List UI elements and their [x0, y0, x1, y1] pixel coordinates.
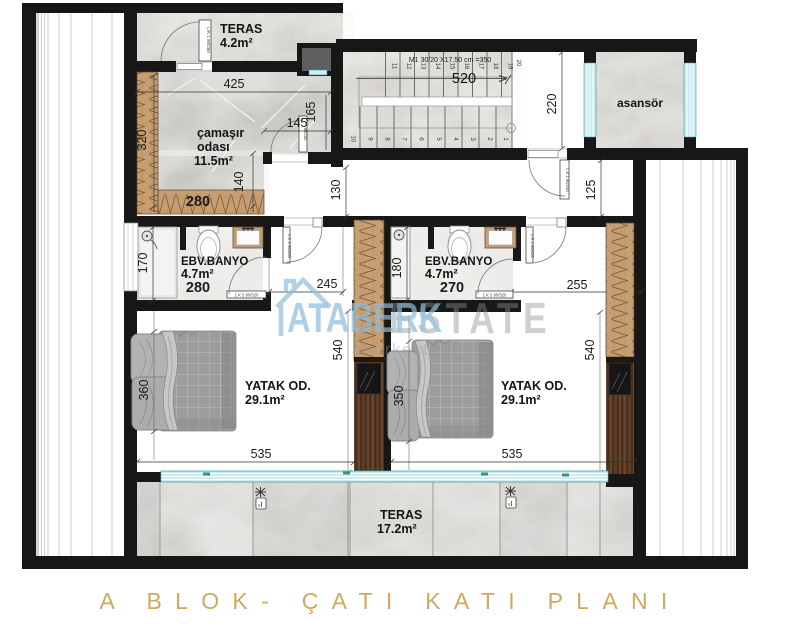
svg-text:540: 540 — [331, 340, 345, 361]
svg-text:13: 13 — [420, 63, 426, 70]
svg-text:asansör: asansör — [617, 96, 663, 110]
svg-text:535: 535 — [251, 447, 272, 461]
svg-text:520: 520 — [452, 71, 476, 87]
svg-text:15: 15 — [449, 63, 455, 70]
svg-text:140: 140 — [232, 172, 246, 193]
svg-text:4.2m²: 4.2m² — [220, 36, 253, 50]
svg-text:540: 540 — [583, 340, 597, 361]
svg-text:130: 130 — [329, 180, 343, 201]
svg-text:180: 180 — [390, 258, 404, 279]
svg-text:14: 14 — [434, 63, 440, 70]
svg-text:125: 125 — [584, 180, 598, 201]
svg-text:10: 10 — [350, 136, 356, 143]
svg-text:29.1m²: 29.1m² — [245, 393, 285, 407]
svg-text:170: 170 — [136, 253, 150, 274]
svg-text:165: 165 — [304, 102, 318, 123]
svg-text:11: 11 — [391, 63, 397, 70]
svg-text:535: 535 — [502, 447, 523, 461]
svg-text:4.7m²: 4.7m² — [181, 267, 214, 281]
svg-text:280: 280 — [186, 194, 210, 210]
svg-text:11.5m²: 11.5m² — [194, 154, 233, 168]
svg-text:TERAS: TERAS — [380, 508, 422, 522]
svg-text:17: 17 — [478, 63, 484, 70]
svg-text:odası: odası — [197, 140, 230, 154]
svg-text:360: 360 — [137, 380, 151, 401]
svg-text:220: 220 — [545, 94, 559, 115]
svg-text:350: 350 — [392, 386, 406, 407]
svg-text:255: 255 — [567, 278, 588, 292]
svg-text:17.2m²: 17.2m² — [377, 522, 417, 536]
svg-text:L K 1 90/250: L K 1 90/250 — [530, 234, 535, 258]
svg-text:29.1m²: 29.1m² — [501, 393, 541, 407]
svg-text:YATAK OD.: YATAK OD. — [245, 379, 311, 393]
svg-text:12: 12 — [405, 63, 411, 70]
svg-text:L/K 1 90/250: L/K 1 90/250 — [206, 27, 211, 53]
svg-text:ATABERK: ATABERK — [287, 294, 442, 341]
svg-text:aberkestate.co: aberkestate.co — [352, 340, 485, 359]
svg-text:20: 20 — [515, 60, 521, 67]
svg-text:A BLOK- ÇATI KATI PLANI: A BLOK- ÇATI KATI PLANI — [99, 588, 680, 614]
svg-text:TERAS: TERAS — [220, 22, 262, 36]
svg-text:245: 245 — [317, 277, 338, 291]
svg-text:L K 1 90/250: L K 1 90/250 — [287, 234, 292, 258]
svg-text:4.7m²: 4.7m² — [425, 267, 458, 281]
svg-text:18: 18 — [492, 63, 498, 70]
svg-text:280: 280 — [186, 280, 210, 296]
svg-text:YATAK OD.: YATAK OD. — [501, 379, 567, 393]
svg-text:1 K 5 90/320: 1 K 5 90/320 — [235, 293, 259, 298]
svg-text:19: 19 — [507, 63, 513, 70]
svg-text:L K 1 90/250: L K 1 90/250 — [565, 168, 570, 192]
svg-text:16: 16 — [463, 63, 469, 70]
svg-text:425: 425 — [224, 77, 245, 91]
svg-text:320: 320 — [135, 130, 149, 151]
svg-text:çamaşır: çamaşır — [197, 126, 244, 140]
